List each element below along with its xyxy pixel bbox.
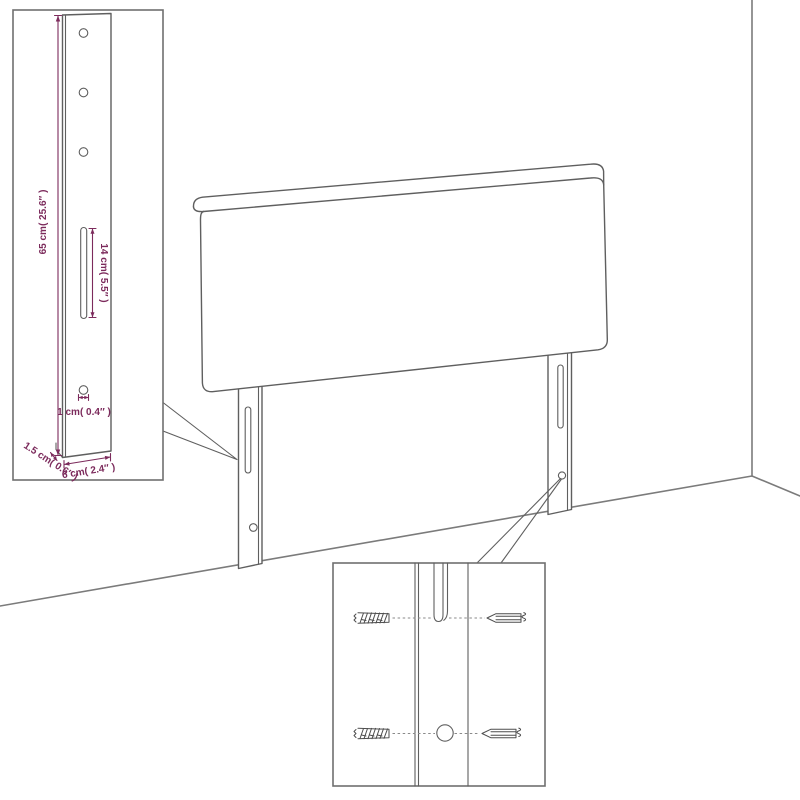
assembly-diagram: 65 cm( 25.6″ ) 14 cm( 5.5″ ) 1 cm( 0.4″ … bbox=[0, 0, 800, 800]
diagram-svg: 65 cm( 25.6″ ) 14 cm( 5.5″ ) 1 cm( 0.4″ … bbox=[0, 0, 800, 800]
leg-detail-inset: 65 cm( 25.6″ ) 14 cm( 5.5″ ) 1 cm( 0.4″ … bbox=[13, 10, 163, 483]
left-callout bbox=[163, 403, 237, 460]
dim-slot-label: 14 cm( 5.5″ ) bbox=[98, 243, 109, 302]
panel-top-edge-cap bbox=[194, 207, 204, 212]
headboard-right-leg bbox=[548, 343, 572, 515]
left-callout-lines bbox=[163, 403, 237, 460]
dim-height-label: 65 cm( 25.6″ ) bbox=[38, 190, 49, 255]
dim-hole-label: 1 cm( 0.4″ ) bbox=[57, 407, 111, 418]
headboard-panel bbox=[193, 164, 607, 392]
mounting-detail-box bbox=[333, 563, 545, 786]
mounting-detail-inset bbox=[333, 563, 545, 786]
panel-front-face bbox=[200, 178, 607, 392]
headboard-left-leg bbox=[239, 376, 263, 569]
floor-line-right bbox=[752, 476, 800, 496]
